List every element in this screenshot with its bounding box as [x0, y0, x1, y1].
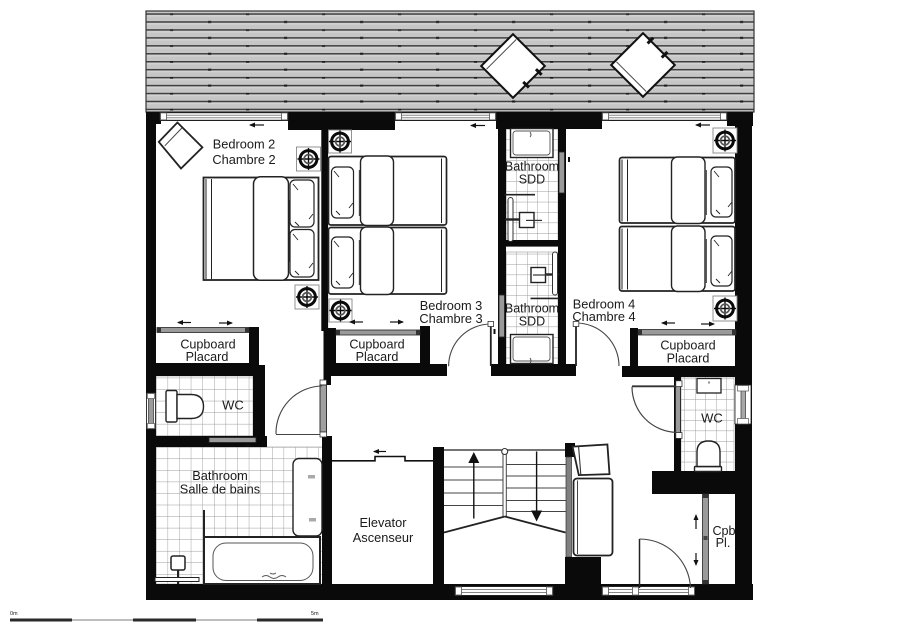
svg-text:Chambre 2: Chambre 2	[212, 152, 275, 167]
svg-text:Pl.: Pl.	[716, 536, 731, 550]
svg-text:Salle de bains: Salle de bains	[180, 482, 260, 497]
svg-text:SDD: SDD	[519, 315, 545, 329]
svg-text:Cupboard: Cupboard	[660, 339, 715, 353]
svg-text:0m: 0m	[10, 611, 18, 617]
svg-text:Chambre 4: Chambre 4	[572, 309, 635, 324]
svg-text:SDD: SDD	[519, 173, 545, 187]
svg-text:Ascenseur: Ascenseur	[353, 530, 414, 545]
svg-text:5m: 5m	[311, 611, 319, 617]
svg-text:Elevator: Elevator	[360, 515, 408, 530]
svg-text:WC: WC	[701, 411, 723, 426]
svg-text:Bathroom: Bathroom	[505, 302, 559, 316]
svg-text:Placard: Placard	[356, 350, 399, 364]
svg-text:Bathroom: Bathroom	[505, 160, 559, 174]
svg-text:Placard: Placard	[186, 350, 229, 364]
svg-text:Bedroom 2: Bedroom 2	[213, 137, 276, 152]
svg-text:Placard: Placard	[667, 352, 710, 366]
svg-text:WC: WC	[222, 398, 244, 413]
svg-text:Chambre 3: Chambre 3	[419, 311, 482, 326]
